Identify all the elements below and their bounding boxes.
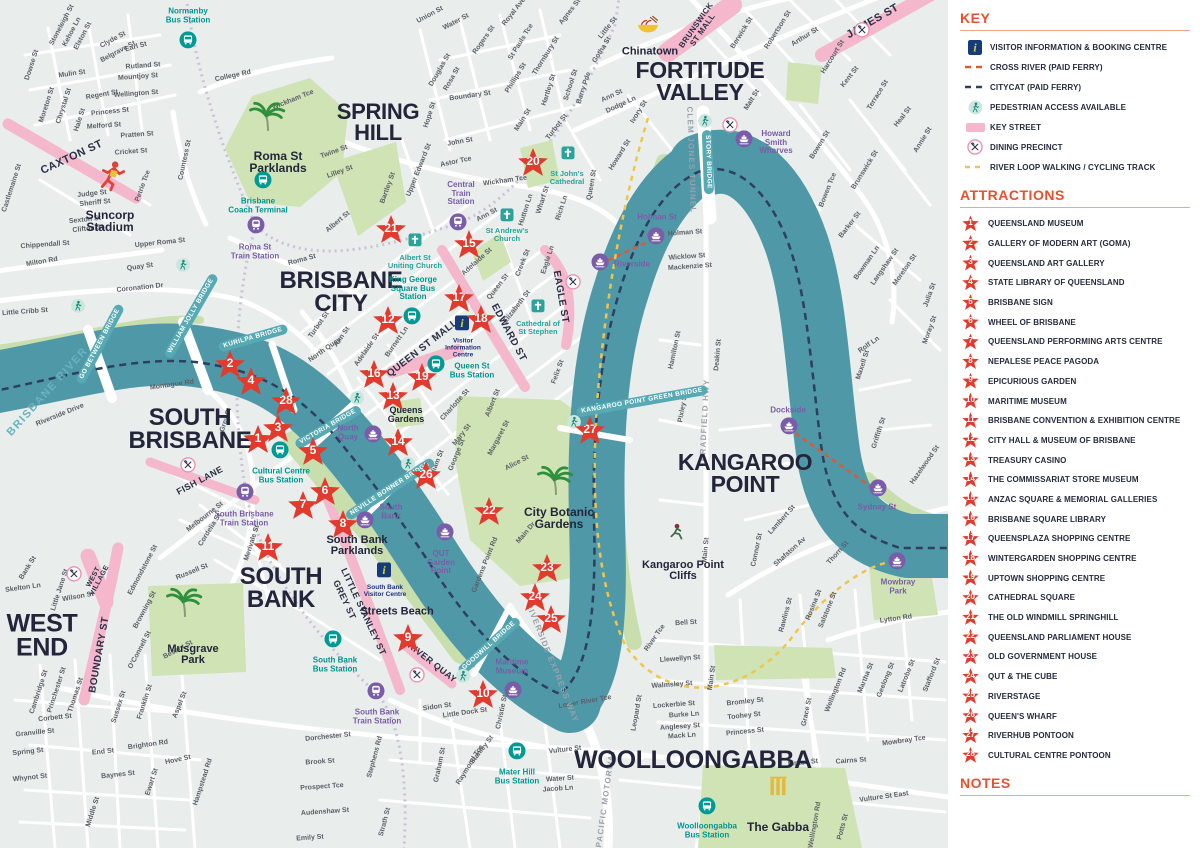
bus-station-label: Cultural Centre Bus Station [252, 467, 310, 484]
landmark-label: Queens Gardens [388, 406, 425, 424]
visitor-info-label: Visitor Information Centre [445, 337, 481, 358]
ferry-station-label: Sydney St [858, 504, 897, 513]
district-label: WOOLLOONGABBA [574, 749, 812, 773]
bowl-icon [636, 15, 660, 39]
church-label: Albert St Uniting Church [388, 254, 442, 270]
ferry-station-icon [505, 681, 522, 702]
park-label: City Botanic Gardens [524, 506, 594, 530]
bus-station-label: Queen St Bus Station [450, 362, 494, 379]
district-label: SOUTH BANK [240, 566, 323, 612]
attraction-name: BRISBANE SIGN [988, 298, 1053, 307]
attraction-list-item: 13TREASURY CASINO [960, 450, 1190, 470]
attraction-name: QUT & THE CUBE [988, 672, 1057, 681]
attraction-list-item: 6WHEEL OF BRISBANE [960, 312, 1190, 332]
attraction-number-star: 17 [962, 530, 979, 547]
key-item: iVISITOR INFORMATION & BOOKING CENTRE [960, 37, 1190, 57]
attraction-name: GALLERY OF MODERN ART (GOMA) [988, 239, 1131, 248]
church-icon [562, 146, 575, 163]
orange-dash-icon [960, 64, 990, 70]
attraction-number-star: 25 [962, 688, 979, 705]
landmark-label: Suncorp Stadium [86, 209, 135, 233]
district-label: KANGAROO POINT [678, 452, 812, 496]
bus-station-label: Woolloongabba Bus Station [677, 822, 737, 839]
visitor-info-label: South Bank Visitor Centre [364, 584, 407, 598]
dining-precinct-icon [854, 22, 870, 42]
train-station-icon [450, 213, 467, 234]
attraction-list-item: 22QUEENSLAND PARLIAMENT HOUSE [960, 627, 1190, 647]
attraction-number-star: 2 [962, 235, 979, 252]
attraction-list-item: 10MARITIME MUSEUM [960, 391, 1190, 411]
key-item-label: RIVER LOOP WALKING / CYCLING TRACK [990, 163, 1155, 172]
attraction-name: CULTURAL CENTRE PONTOON [988, 751, 1111, 760]
visitor-info-icon: i [455, 315, 469, 334]
train-station-icon [368, 682, 385, 703]
palm-tree-icon [165, 585, 205, 623]
church-icon [409, 233, 422, 250]
attraction-list-item: 20CATHEDRAL SQUARE [960, 588, 1190, 608]
attraction-list-item: 11BRISBANE CONVENTION & EXHIBITION CENTR… [960, 411, 1190, 431]
ferry-station-icon [357, 511, 374, 532]
attraction-name: QUEENSLAND PERFORMING ARTS CENTRE [988, 337, 1163, 346]
key-item: CITYCAT (PAID FERRY) [960, 77, 1190, 97]
attraction-list-item: 7QUEENSLAND PERFORMING ARTS CENTRE [960, 332, 1190, 352]
attraction-number-star: 5 [962, 294, 979, 311]
bus-station-icon [180, 31, 197, 52]
ferry-station-label: Dockside [770, 407, 806, 416]
attraction-name: THE OLD WINDMILL SPRINGHILL [988, 613, 1119, 622]
park-label: Musgrave Park [167, 644, 218, 666]
attraction-number-star: 10 [962, 393, 979, 410]
landmark-label: Chinatown [622, 46, 678, 57]
attraction-number-star: 4 [962, 274, 979, 291]
visitor-info-icon: i [377, 562, 391, 581]
attractions-title: ATTRACTIONS [960, 187, 1190, 203]
attraction-list-item: 3QUEENSLAND ART GALLERY [960, 253, 1190, 273]
navy-dash-icon [960, 84, 990, 90]
palm-tree-icon [248, 99, 288, 137]
attractions-list: 1QUEENSLAND MUSEUM2GALLERY OF MODERN ART… [960, 214, 1190, 765]
ferry-station-label: South Bank [380, 503, 403, 520]
attraction-name: ANZAC SQUARE & MEMORIAL GALLERIES [988, 495, 1157, 504]
stumps-icon [767, 774, 789, 802]
attraction-number-star: 16 [962, 511, 979, 528]
attraction-name: QUEENSLAND ART GALLERY [988, 259, 1105, 268]
pedestrian-access-icon [350, 390, 365, 409]
church-label: St Andrew's Church [486, 227, 529, 243]
attraction-number-star: 21 [962, 609, 979, 626]
bus-station-icon [272, 441, 289, 462]
bus-station-label: Brisbane Coach Terminal [228, 197, 287, 214]
train-station-label: Central Train Station [447, 181, 475, 207]
attraction-list-item: 9EPICURIOUS GARDEN [960, 372, 1190, 392]
ferry-station-label: Riverside [614, 261, 650, 270]
attraction-list-item: 14THE COMMISSARIAT STORE MUSEUM [960, 470, 1190, 490]
bus-station-icon [325, 630, 342, 651]
key-item: KEY STREET [960, 117, 1190, 137]
attraction-list-item: 28CULTURAL CENTRE PONTOON [960, 746, 1190, 766]
key-title: KEY [960, 10, 1190, 26]
ferry-station-icon [437, 523, 454, 544]
bus-station-icon [255, 171, 272, 192]
attraction-number-star: 24 [962, 668, 979, 685]
attraction-list-item: 15ANZAC SQUARE & MEMORIAL GALLERIES [960, 490, 1190, 510]
attraction-name: QUEENSLAND PARLIAMENT HOUSE [988, 633, 1131, 642]
key-item: DINING PRECINCT [960, 137, 1190, 157]
attraction-list-item: 2GALLERY OF MODERN ART (GOMA) [960, 234, 1190, 254]
dining-precinct-icon [409, 667, 425, 687]
attraction-list-item: 18WINTERGARDEN SHOPPING CENTRE [960, 549, 1190, 569]
runner-icon [98, 159, 128, 197]
bus-station-icon [509, 742, 526, 763]
attraction-number-star: 18 [962, 550, 979, 567]
attraction-name: RIVERSTAGE [988, 692, 1040, 701]
key-item: CROSS RIVER (PAID FERRY) [960, 57, 1190, 77]
legend-sidebar: KEY iVISITOR INFORMATION & BOOKING CENTR… [948, 0, 1200, 848]
train-station-label: South Brisbane Train Station [214, 510, 273, 527]
attraction-name: QUEENSPLAZA SHOPPING CENTRE [988, 534, 1130, 543]
attraction-number-star: 9 [962, 373, 979, 390]
ferry-station-label: QUT Garden Point [427, 550, 455, 576]
ferry-station-label: Holman St [637, 214, 677, 223]
landmark-label: The Gabba [747, 821, 809, 833]
bus-station-label: Normanby Bus Station [166, 7, 210, 24]
key-item-label: DINING PRECINCT [990, 143, 1063, 152]
attraction-list-item: 4STATE LIBRARY OF QUEENSLAND [960, 273, 1190, 293]
ferry-station-label: Howard Smith Wharves [759, 130, 792, 156]
attraction-name: EPICURIOUS GARDEN [988, 377, 1076, 386]
attraction-list-item: 8NEPALESE PEACE PAGODA [960, 352, 1190, 372]
attraction-list-item: 19UPTOWN SHOPPING CENTRE [960, 568, 1190, 588]
attraction-list-item: 17QUEENSPLAZA SHOPPING CENTRE [960, 529, 1190, 549]
ferry-station-label: Mowbray Park [881, 578, 916, 595]
attraction-name: OLD GOVERNMENT HOUSE [988, 652, 1097, 661]
key-item: RIVER LOOP WALKING / CYCLING TRACK [960, 157, 1190, 177]
park-label: South Bank Parklands [326, 535, 387, 557]
attraction-name: QUEENSLAND MUSEUM [988, 219, 1083, 228]
attraction-number-star: 19 [962, 570, 979, 587]
attraction-name: QUEEN'S WHARF [988, 712, 1057, 721]
ferry-station-icon [648, 227, 665, 248]
pedestrian-access-icon [567, 414, 582, 433]
attraction-name: STATE LIBRARY OF QUEENSLAND [988, 278, 1125, 287]
city-map: Stoneleigh StKehoe LnElston StClyde StBe… [0, 0, 948, 848]
attraction-number-star: 1 [962, 215, 979, 232]
palm-tree-icon [536, 463, 576, 501]
attraction-number-star: 8 [962, 353, 979, 370]
divider [960, 207, 1190, 208]
attraction-name: BRISBANE SQUARE LIBRARY [988, 515, 1106, 524]
train-station-icon [237, 483, 254, 504]
ferry-station-label: North Quay [337, 424, 358, 441]
brisbane-tourist-map-page: Stoneleigh StKehoe LnElston StClyde StBe… [0, 0, 1200, 848]
attraction-list-item: 1QUEENSLAND MUSEUM [960, 214, 1190, 234]
attraction-list-item: 24QUT & THE CUBE [960, 667, 1190, 687]
attraction-number-star: 23 [962, 648, 979, 665]
dining-icon [960, 139, 990, 155]
bus-station-icon [404, 307, 421, 328]
bus-station-label: South Bank Bus Station [313, 656, 357, 673]
attraction-number-star: 12 [962, 432, 979, 449]
attraction-number-star: 6 [962, 314, 979, 331]
info-icon: i [960, 40, 990, 55]
bus-station-icon [699, 797, 716, 818]
district-label: SPRING HILL [337, 102, 420, 144]
attraction-list-item: 26QUEEN'S WHARF [960, 706, 1190, 726]
attraction-number-star: 15 [962, 491, 979, 508]
pedestrian-icon [960, 100, 990, 115]
pedestrian-access-icon [71, 298, 86, 317]
ferry-station-label: Maritime Museum [496, 658, 529, 675]
attraction-number-star: 20 [962, 589, 979, 606]
pedestrian-access-icon [176, 257, 191, 276]
attraction-name: CATHEDRAL SQUARE [988, 593, 1075, 602]
district-label: FORTITUDE VALLEY [636, 60, 765, 104]
bus-station-label: Mater Hill Bus Station [495, 768, 539, 785]
attraction-name: UPTOWN SHOPPING CENTRE [988, 574, 1105, 583]
attraction-number-star: 13 [962, 452, 979, 469]
pedestrian-access-icon [698, 113, 713, 132]
attraction-number-star: 14 [962, 471, 979, 488]
attraction-name: TREASURY CASINO [988, 456, 1066, 465]
attraction-name: RIVERHUB PONTOON [988, 731, 1074, 740]
key-item-label: PEDESTRIAN ACCESS AVAILABLE [990, 103, 1126, 112]
key-list: iVISITOR INFORMATION & BOOKING CENTRECRO… [960, 37, 1190, 177]
church-label: St John's Cathedral [550, 170, 585, 186]
attraction-name: NEPALESE PEACE PAGODA [988, 357, 1099, 366]
attraction-number-star: 7 [962, 333, 979, 350]
attraction-name: THE COMMISSARIAT STORE MUSEUM [988, 475, 1139, 484]
key-item-label: VISITOR INFORMATION & BOOKING CENTRE [990, 43, 1167, 52]
ferry-station-icon [889, 552, 906, 573]
dining-precinct-icon [180, 457, 196, 477]
key-item-label: KEY STREET [990, 123, 1041, 132]
church-icon [532, 299, 545, 316]
divider [960, 30, 1190, 31]
ferry-station-icon [365, 425, 382, 446]
attraction-number-star: 27 [962, 727, 979, 744]
attraction-number-star: 28 [962, 747, 979, 764]
train-station-label: South Bank Train Station [353, 708, 401, 725]
key-item-label: CROSS RIVER (PAID FERRY) [990, 63, 1103, 72]
attraction-list-item: 21THE OLD WINDMILL SPRINGHILL [960, 608, 1190, 628]
landmark-label: Kangaroo Point Cliffs [642, 560, 724, 582]
district-label: WEST END [6, 612, 77, 660]
dining-precinct-icon [565, 274, 581, 294]
attraction-name: WHEEL OF BRISBANE [988, 318, 1076, 327]
attraction-name: CITY HALL & MUSEUM OF BRISBANE [988, 436, 1136, 445]
attraction-list-item: 27RIVERHUB PONTOON [960, 726, 1190, 746]
ferry-station-icon [781, 417, 798, 438]
church-label: Cathedral of St Stephen [516, 320, 560, 336]
train-station-label: Roma St Train Station [231, 243, 279, 260]
attraction-number-star: 26 [962, 708, 979, 725]
key-item: PEDESTRIAN ACCESS AVAILABLE [960, 97, 1190, 117]
attraction-list-item: 16BRISBANE SQUARE LIBRARY [960, 509, 1190, 529]
attraction-number-star: 22 [962, 629, 979, 646]
attraction-list-item: 12CITY HALL & MUSEUM OF BRISBANE [960, 431, 1190, 451]
ferry-station-icon [736, 130, 753, 151]
key-item-label: CITYCAT (PAID FERRY) [990, 83, 1081, 92]
attraction-number-star: 3 [962, 255, 979, 272]
dining-precinct-icon [66, 566, 82, 586]
dining-precinct-icon [722, 117, 738, 137]
attraction-name: WINTERGARDEN SHOPPING CENTRE [988, 554, 1137, 563]
attraction-list-item: 5BRISBANE SIGN [960, 293, 1190, 313]
attraction-list-item: 23OLD GOVERNMENT HOUSE [960, 647, 1190, 667]
ferry-station-icon [870, 479, 887, 500]
divider [960, 795, 1190, 796]
pedestrian-access-icon [456, 668, 471, 687]
ferry-station-icon [592, 253, 609, 274]
landmark-label: Streets Beach [360, 606, 433, 617]
attraction-list-item: 25RIVERSTAGE [960, 687, 1190, 707]
church-icon [501, 208, 514, 225]
district-label: SOUTH BRISBANE [129, 407, 252, 453]
notes-title: NOTES [960, 775, 1190, 791]
attraction-name: BRISBANE CONVENTION & EXHIBITION CENTRE [988, 416, 1180, 425]
yellow-dash-icon [960, 164, 990, 170]
district-label: BRISBANE CITY [280, 270, 403, 316]
attraction-name: MARITIME MUSEUM [988, 397, 1067, 406]
climber-icon [668, 523, 686, 545]
bus-station-label: King George Square Bus Station [389, 276, 437, 302]
train-station-icon [248, 216, 265, 237]
key-street-icon [960, 123, 990, 132]
attraction-number-star: 11 [962, 412, 979, 429]
